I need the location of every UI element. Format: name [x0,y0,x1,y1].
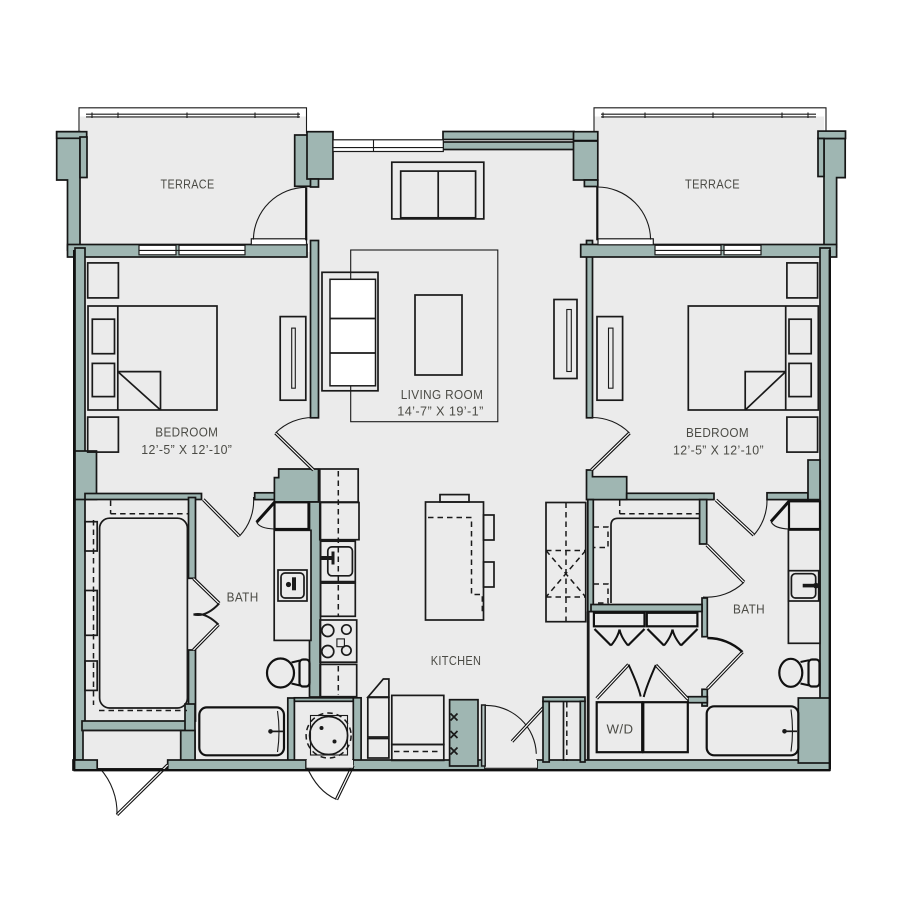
svg-text:W/D: W/D [607,721,634,736]
svg-text:12’-5” X 12’-10”: 12’-5” X 12’-10” [141,442,232,457]
svg-text:BEDROOM: BEDROOM [155,425,218,440]
svg-text:KITCHEN: KITCHEN [431,653,482,668]
svg-text:14’-7” X 19’-1”: 14’-7” X 19’-1” [397,404,484,419]
svg-text:BEDROOM: BEDROOM [686,425,749,440]
svg-text:LIVING ROOM: LIVING ROOM [401,387,484,402]
svg-text:12’-5” X 12’-10”: 12’-5” X 12’-10” [673,442,764,457]
svg-text:BATH: BATH [227,590,259,605]
svg-text:TERRACE: TERRACE [685,177,740,192]
svg-text:BATH: BATH [733,602,765,617]
svg-text:TERRACE: TERRACE [161,177,215,192]
